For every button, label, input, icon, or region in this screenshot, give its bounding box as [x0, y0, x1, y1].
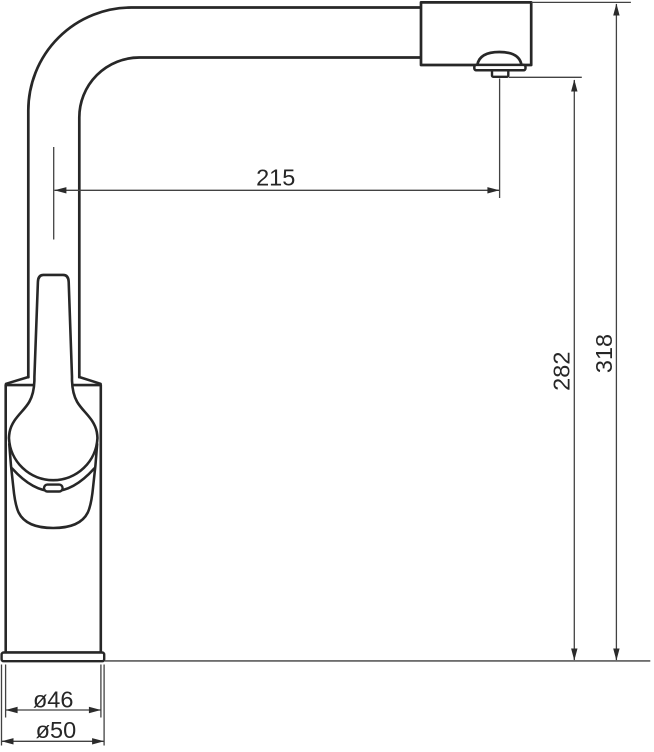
- svg-text:318: 318: [591, 334, 617, 373]
- svg-text:ø50: ø50: [36, 717, 77, 743]
- svg-text:215: 215: [256, 165, 295, 191]
- svg-text:ø46: ø46: [33, 686, 74, 712]
- svg-text:282: 282: [549, 352, 575, 391]
